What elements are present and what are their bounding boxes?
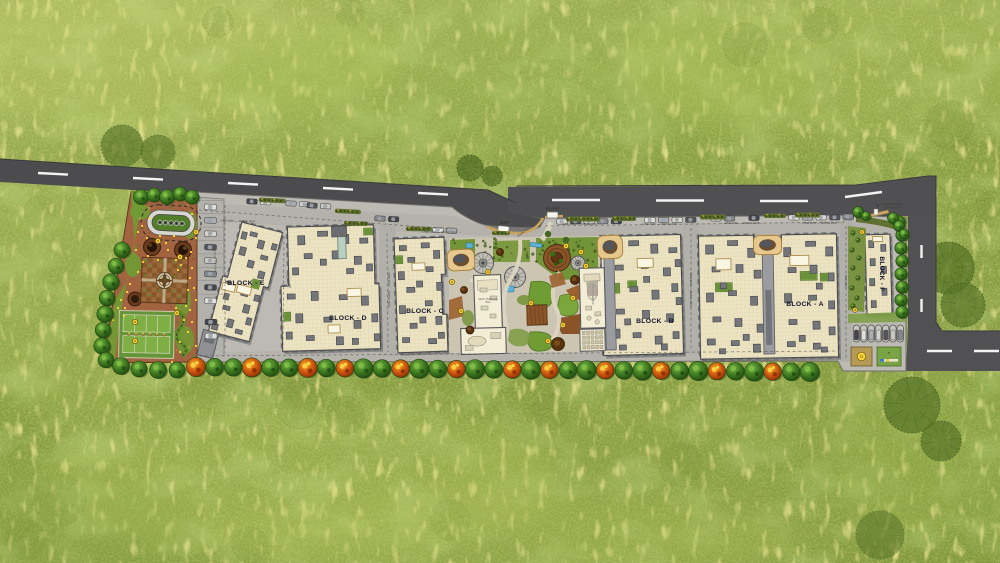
svg-text:BLOCK - E: BLOCK - E (227, 280, 265, 287)
svg-text:← ONE WAY — DRIVE WAY →: ← ONE WAY — DRIVE WAY → (799, 221, 842, 225)
svg-text:BLOCK - D: BLOCK - D (329, 315, 367, 322)
svg-text:BLOCK - F: BLOCK - F (878, 256, 885, 291)
svg-text:BLOCK - B: BLOCK - B (636, 318, 674, 325)
svg-text:BLOCK - A: BLOCK - A (786, 301, 824, 308)
svg-text:EXIT: EXIT (500, 220, 510, 225)
svg-text:← ONE WAY — DRIVE WAY →: ← ONE WAY — DRIVE WAY → (639, 222, 682, 226)
svg-text:P: P (888, 351, 890, 355)
svg-text:HALL: HALL (485, 301, 492, 304)
svg-text:← ONE WAY — DRIVE WAY →: ← ONE WAY — DRIVE WAY → (419, 230, 462, 235)
svg-text:ENTRY: ENTRY (546, 207, 560, 212)
svg-text:← ONE WAY — DRIVE WAY →: ← ONE WAY — DRIVE WAY → (387, 269, 391, 312)
svg-text:← ONE WAY — DRIVE WAY →: ← ONE WAY — DRIVE WAY → (689, 269, 693, 312)
svg-text:BLOCK - C: BLOCK - C (406, 308, 444, 315)
svg-text:← ONE WAY — DRIVE WAY →: ← ONE WAY — DRIVE WAY → (721, 221, 764, 225)
svg-text:← ONE WAY: ← ONE WAY (844, 271, 848, 289)
svg-text:← ONE WAY — DRIVE WAY →: ← ONE WAY — DRIVE WAY → (559, 222, 602, 226)
svg-text:ENTRY/EXIT: ENTRY/EXIT (884, 206, 902, 210)
